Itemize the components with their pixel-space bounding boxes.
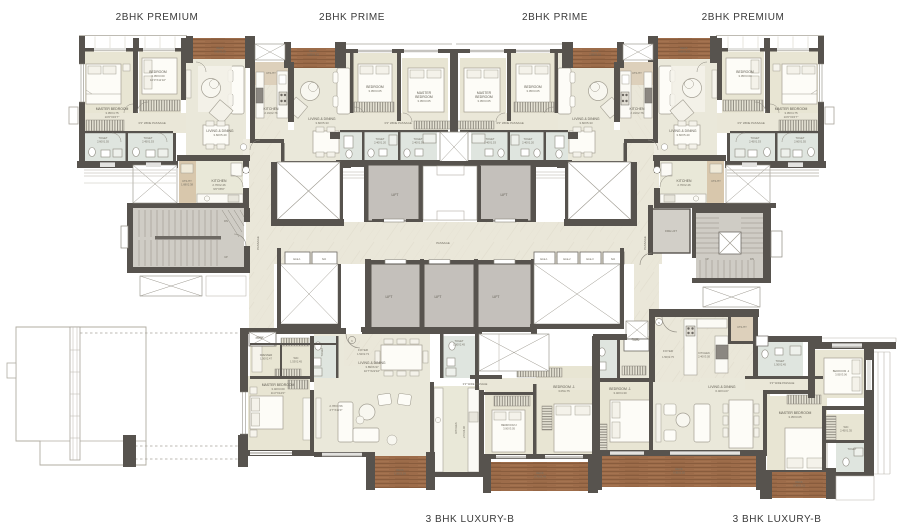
svg-text:WIC: WIC	[293, 356, 298, 360]
svg-text:2.45X1.53: 2.45X1.53	[749, 139, 761, 143]
svg-text:10'0"X11'10": 10'0"X11'10"	[150, 78, 166, 82]
svg-text:1.68X2.38: 1.68X2.38	[181, 182, 193, 186]
svg-text:DECK: DECK	[591, 49, 598, 53]
svg-text:LIFT: LIFT	[386, 295, 393, 299]
svg-text:ELE-1: ELE-1	[540, 257, 548, 261]
svg-text:UP: UP	[705, 257, 709, 261]
svg-text:3.35X3.05: 3.35X3.05	[788, 415, 802, 419]
svg-text:3.40X4.30: 3.40X4.30	[613, 391, 627, 395]
svg-text:DECK: DECK	[396, 468, 403, 472]
svg-text:1.50X2.75: 1.50X2.75	[662, 355, 674, 359]
svg-text:3'3" WIDE PASSAGE: 3'3" WIDE PASSAGE	[463, 382, 488, 386]
svg-text:2.40X1.20: 2.40X1.20	[522, 140, 534, 144]
svg-text:KITCHEN: KITCHEN	[454, 422, 458, 434]
svg-text:3'3" WIDE PASSAGE: 3'3" WIDE PASSAGE	[496, 121, 524, 125]
svg-text:TOILET: TOILET	[847, 447, 856, 451]
svg-text:2.60X1.55: 2.60X1.55	[97, 139, 109, 143]
svg-text:2.31X2.76: 2.31X2.76	[630, 111, 644, 115]
svg-text:PASSAGE: PASSAGE	[256, 236, 260, 250]
svg-text:11'2"X12'0": 11'2"X12'0"	[271, 391, 286, 395]
svg-text:2.57X4.46: 2.57X4.46	[462, 426, 466, 438]
svg-text:TOILET: TOILET	[523, 137, 532, 141]
svg-text:1.53X2.45: 1.53X2.45	[290, 359, 302, 363]
svg-text:N/A: N/A	[611, 257, 616, 261]
svg-text:3.60X1.22: 3.60X1.22	[678, 49, 690, 53]
svg-text:3.30X1.31: 3.30X1.31	[793, 483, 805, 487]
svg-text:1.50X2.47: 1.50X2.47	[260, 356, 272, 360]
svg-text:2.45X1.53: 2.45X1.53	[142, 139, 154, 143]
svg-text:3.60X5.40: 3.60X5.40	[676, 133, 690, 137]
svg-text:3.05X3.05: 3.05X3.05	[368, 89, 382, 93]
svg-text:PASSAGE: PASSAGE	[643, 236, 647, 250]
svg-text:3.05A.75: 3.05A.75	[558, 389, 570, 393]
svg-text:DN: DN	[750, 257, 754, 261]
svg-text:DECK: DECK	[216, 46, 223, 50]
svg-text:DRESSER: DRESSER	[260, 353, 273, 357]
svg-text:3.60X1.22: 3.60X1.22	[214, 49, 226, 53]
svg-text:3 BHK LUXURY-B: 3 BHK LUXURY-B	[733, 514, 822, 525]
svg-text:DECK: DECK	[675, 467, 682, 471]
svg-text:2'7"X11'0": 2'7"X11'0"	[330, 408, 343, 412]
svg-text:LIFT: LIFT	[392, 193, 399, 197]
svg-text:3.05X3.05: 3.05X3.05	[526, 89, 540, 93]
svg-text:2BHK PRIME: 2BHK PRIME	[522, 12, 588, 23]
svg-text:2BHK PRIME: 2BHK PRIME	[319, 12, 385, 23]
svg-text:1.95X1.50: 1.95X1.50	[394, 471, 406, 475]
svg-text:TOILET: TOILET	[750, 136, 759, 140]
svg-text:3'3" WIDE PASSAGE: 3'3" WIDE PASSAGE	[384, 121, 412, 125]
svg-text:2.40X1.53: 2.40X1.53	[412, 140, 424, 144]
svg-text:9.30X1.50: 9.30X1.50	[673, 470, 685, 474]
svg-text:2.45X1.35: 2.45X1.35	[840, 428, 852, 432]
svg-text:N/A: N/A	[322, 257, 327, 261]
svg-text:DN: DN	[224, 219, 228, 223]
svg-text:DECK: DECK	[680, 46, 687, 50]
svg-text:UTILITY: UTILITY	[182, 179, 192, 183]
svg-text:10'0"X15'7": 10'0"X15'7"	[784, 115, 799, 119]
svg-text:DECK: DECK	[309, 49, 316, 53]
svg-text:FHC2: FHC2	[633, 338, 640, 342]
svg-text:6.40X4.07: 6.40X4.07	[715, 389, 729, 393]
svg-text:3.60X5.33: 3.60X5.33	[579, 121, 593, 125]
svg-text:ELE-1: ELE-1	[293, 257, 301, 261]
svg-text:WIC: WIC	[843, 425, 848, 429]
svg-text:2.60X1.55: 2.60X1.55	[794, 139, 806, 143]
svg-text:3.05X3.06: 3.05X3.06	[835, 372, 847, 376]
svg-text:2.40X1.20: 2.40X1.20	[374, 140, 386, 144]
svg-text:3.05X3.65: 3.05X3.65	[417, 99, 431, 103]
svg-text:TOILET: TOILET	[413, 137, 422, 141]
svg-text:UTILITY: UTILITY	[266, 71, 276, 75]
svg-text:3.60X5.40: 3.60X5.40	[213, 133, 227, 137]
svg-text:FIRE LIFT: FIRE LIFT	[665, 229, 677, 233]
svg-text:UTILITY: UTILITY	[737, 325, 747, 329]
svg-text:ELE-3: ELE-3	[586, 257, 594, 261]
svg-text:FOYER: FOYER	[358, 348, 368, 352]
svg-text:2.76X2.46: 2.76X2.46	[677, 183, 691, 187]
svg-text:10'7"X22'10": 10'7"X22'10"	[364, 369, 380, 373]
svg-text:DECK: DECK	[795, 480, 802, 484]
svg-text:BEDROOM -2: BEDROOM -2	[833, 369, 850, 373]
svg-text:3.00X3.05: 3.00X3.05	[503, 426, 515, 430]
svg-text:2BHK PREMIUM: 2BHK PREMIUM	[116, 12, 199, 23]
svg-text:TOILET: TOILET	[454, 339, 463, 343]
svg-text:2BHK PREMIUM: 2BHK PREMIUM	[702, 12, 785, 23]
svg-text:1.50X2.45: 1.50X2.45	[453, 342, 465, 346]
svg-text:3.70X1.49: 3.70X1.49	[534, 474, 546, 478]
svg-text:LIFT: LIFT	[501, 193, 508, 197]
svg-text:LIFT: LIFT	[493, 295, 500, 299]
svg-text:9'0"X8'0": 9'0"X8'0"	[213, 187, 225, 191]
svg-text:TOILET: TOILET	[485, 137, 494, 141]
svg-text:LIFT: LIFT	[435, 295, 442, 299]
svg-text:3'3" WIDE PASSAGE: 3'3" WIDE PASSAGE	[737, 121, 765, 125]
svg-text:UP: UP	[224, 255, 228, 259]
svg-text:TOILET: TOILET	[320, 347, 324, 356]
svg-text:1.50X2.45: 1.50X2.45	[774, 362, 786, 366]
svg-text:TOILET: TOILET	[143, 136, 152, 140]
svg-text:3.05X1.22: 3.05X1.22	[589, 52, 601, 56]
svg-text:2.31X2.76: 2.31X2.76	[264, 111, 278, 115]
svg-text:3.05X1.22: 3.05X1.22	[307, 52, 319, 56]
svg-text:FHC2: FHC2	[256, 336, 263, 340]
svg-text:3.60X5.33: 3.60X5.33	[315, 121, 329, 125]
svg-text:3 BHK LUXURY-B: 3 BHK LUXURY-B	[426, 514, 515, 525]
svg-text:ELE-2: ELE-2	[563, 257, 571, 261]
svg-text:PASSAGE: PASSAGE	[436, 241, 450, 245]
svg-text:UTILITY: UTILITY	[632, 71, 642, 75]
svg-text:2.40X1.53: 2.40X1.53	[484, 140, 496, 144]
svg-text:3.05X3.65: 3.05X3.65	[477, 99, 491, 103]
svg-text:3'3" WIDE PASSAGE: 3'3" WIDE PASSAGE	[138, 121, 166, 125]
svg-text:2.40X3.05: 2.40X3.05	[698, 354, 710, 358]
svg-text:TOILET: TOILET	[775, 359, 784, 363]
svg-text:TOILET: TOILET	[795, 136, 804, 140]
svg-text:3'3" WIDE PASSAGE: 3'3" WIDE PASSAGE	[770, 381, 795, 385]
svg-text:BEDROOM 2: BEDROOM 2	[501, 423, 517, 427]
svg-text:DECK: DECK	[536, 471, 543, 475]
svg-text:1.52X2.73: 1.52X2.73	[357, 352, 369, 356]
svg-text:UTILITY: UTILITY	[711, 179, 721, 183]
svg-text:10'0"X15'7": 10'0"X15'7"	[105, 115, 120, 119]
svg-text:KITCHEN: KITCHEN	[698, 351, 710, 355]
svg-text:TOILET: TOILET	[98, 136, 107, 140]
svg-text:FOYER: FOYER	[663, 349, 673, 353]
svg-text:TOILET: TOILET	[375, 137, 384, 141]
svg-text:3.05X3.60: 3.05X3.60	[738, 74, 752, 78]
